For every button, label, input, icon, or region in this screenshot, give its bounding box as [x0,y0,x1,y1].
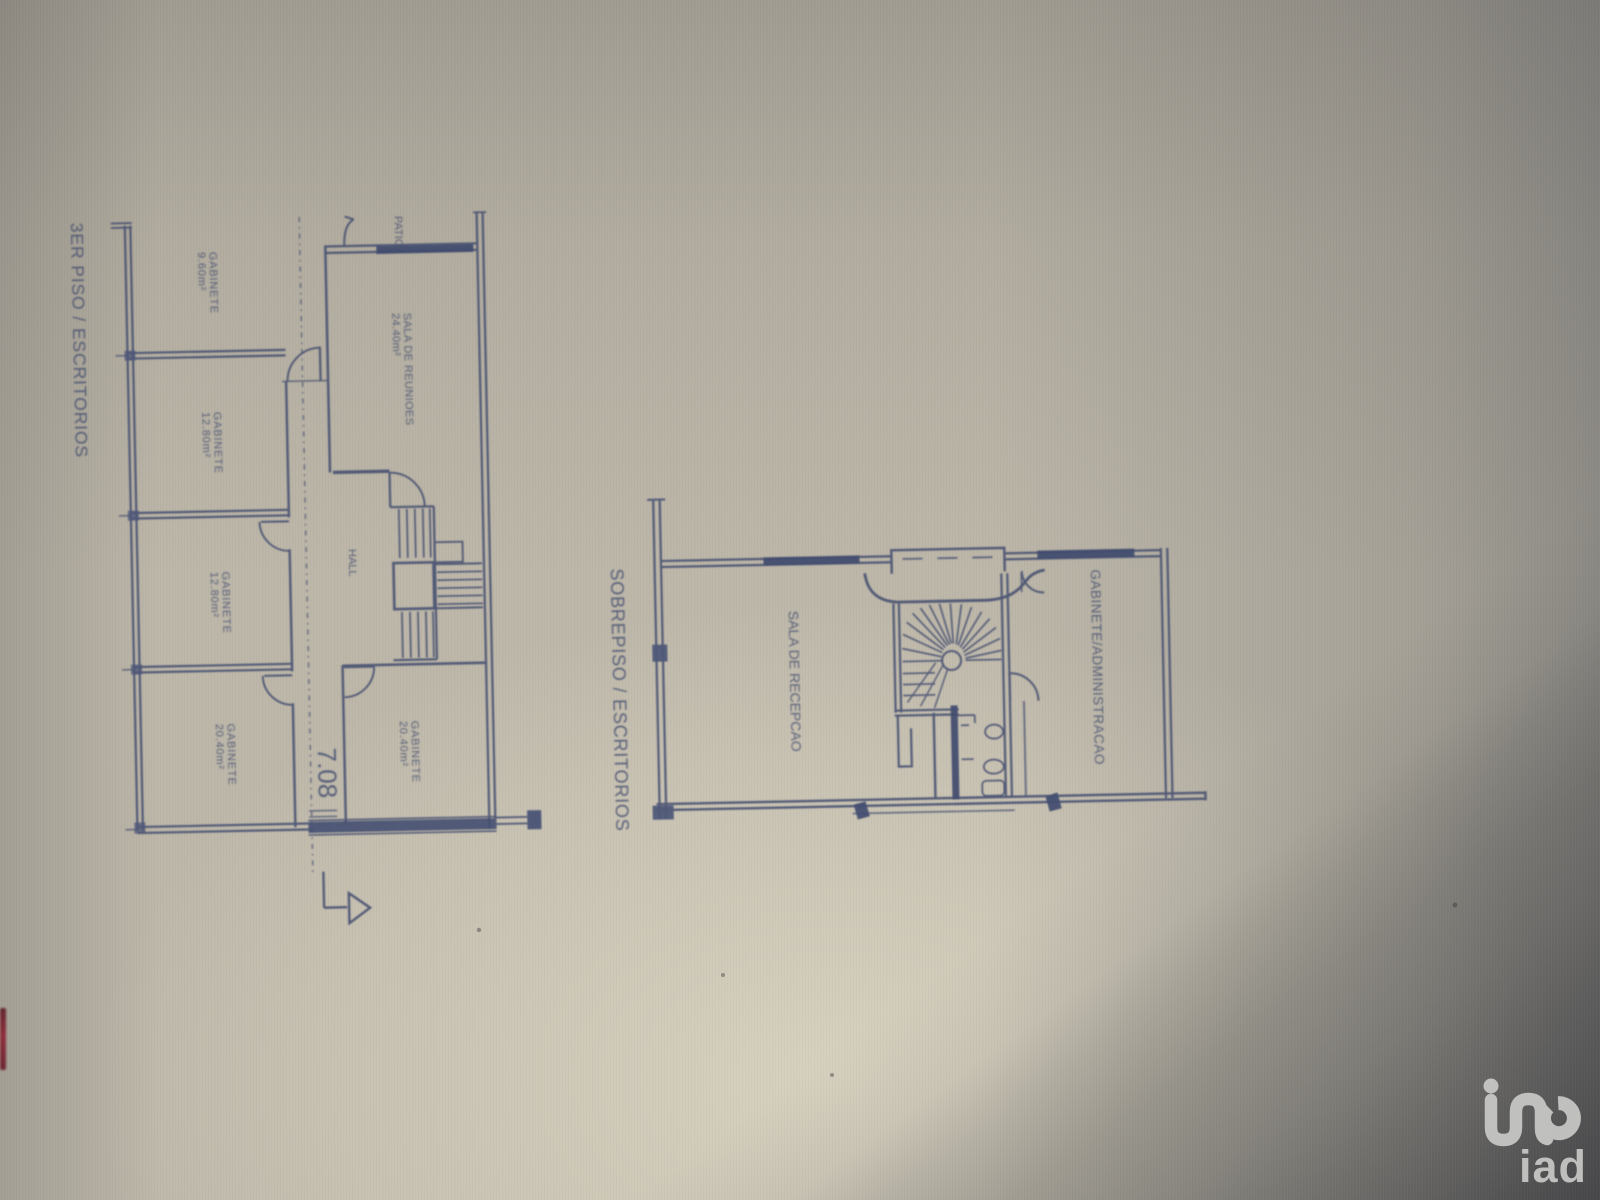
svg-text:iad: iad [1519,1141,1587,1192]
